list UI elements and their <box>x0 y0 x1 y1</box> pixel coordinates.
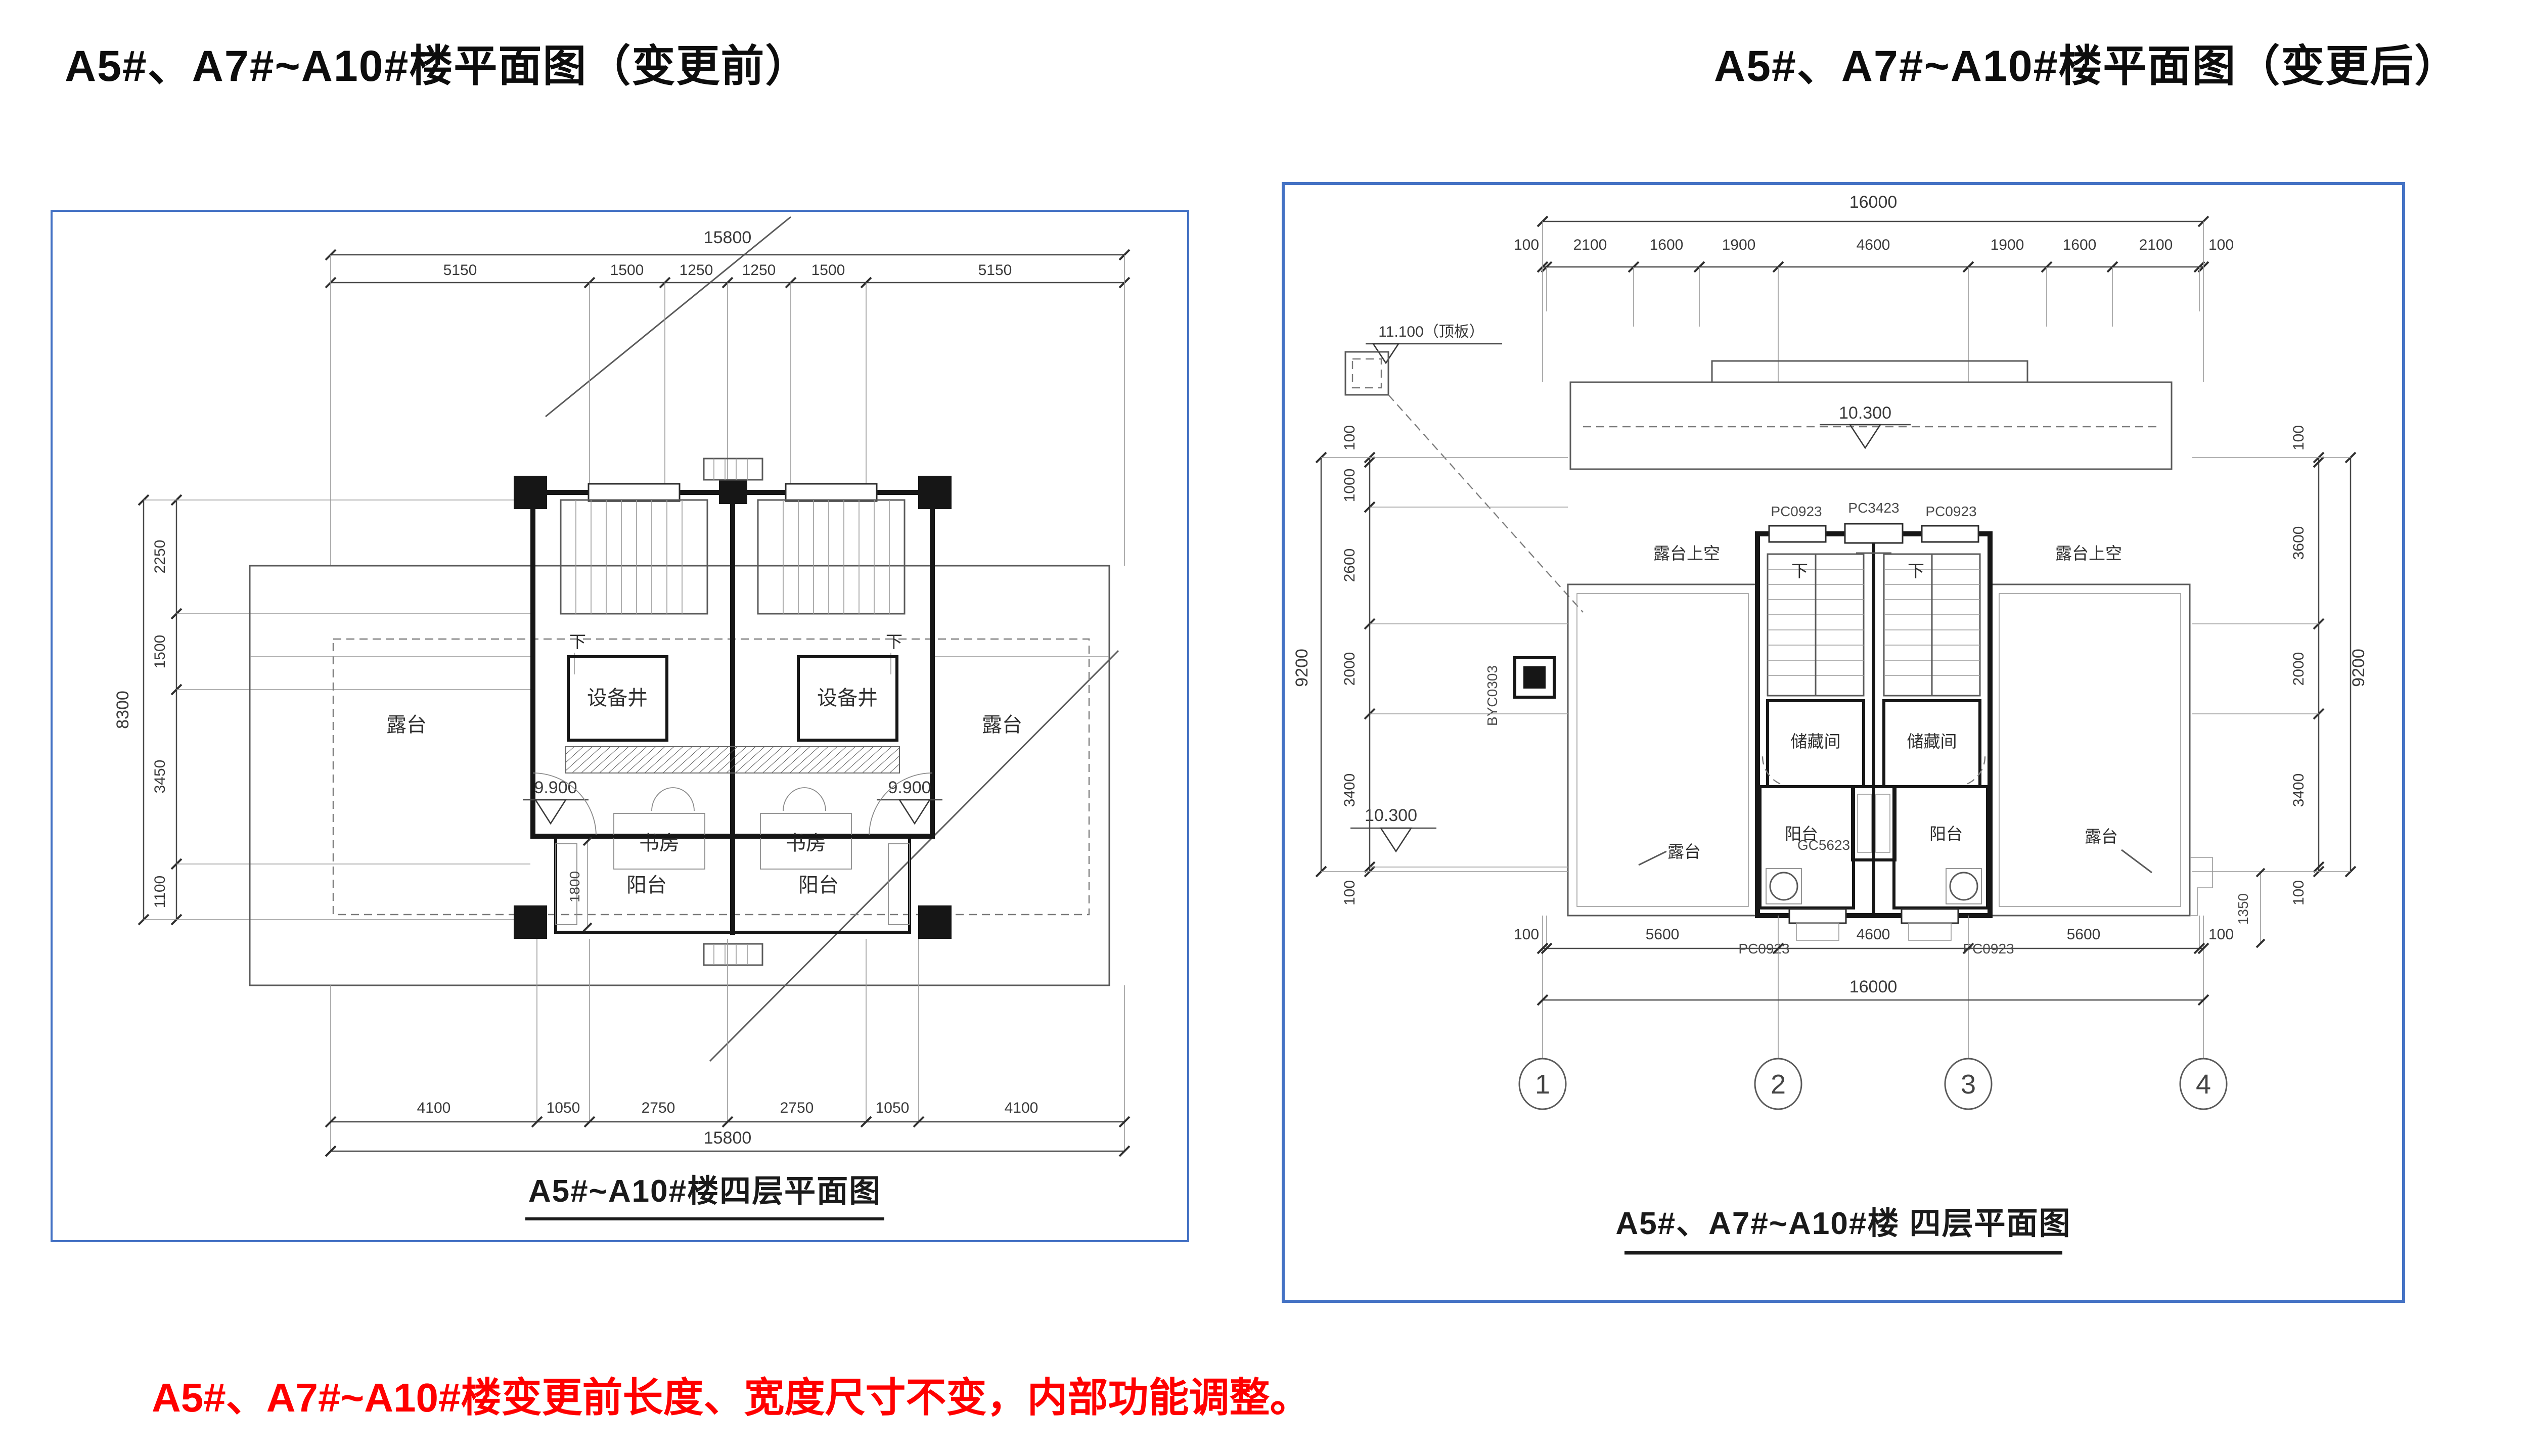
before-plan-drawing: 15800 5150 1500 1250 1250 1500 5150 8300… <box>53 212 1185 1238</box>
svg-text:2750: 2750 <box>780 1100 814 1116</box>
before-caption: A5#~A10#楼四层平面图 <box>528 1174 881 1209</box>
window-tag-top-mid: PC3423 <box>1848 500 1899 516</box>
room-equipment-shaft-left: 设备井 <box>587 687 648 709</box>
level-terrace-left: 10.300 <box>1350 806 1436 851</box>
vent-symbol-bottom <box>704 944 762 965</box>
window-tag-top-left: PC0923 <box>1771 504 1822 519</box>
room-terrace-right: 露台 <box>982 714 1022 736</box>
after-plan-drawing: 16000 100 2100 1600 1900 4600 1900 1600 … <box>1285 185 2396 1294</box>
svg-text:100: 100 <box>1514 926 1539 943</box>
svg-text:1000: 1000 <box>1341 469 1358 503</box>
room-balcony-left: 阳台 <box>1785 825 1818 843</box>
stair-down-label-right: 下 <box>886 632 902 651</box>
svg-text:2000: 2000 <box>1341 652 1358 686</box>
svg-text:1350: 1350 <box>2235 893 2251 925</box>
svg-text:5150: 5150 <box>443 262 477 279</box>
stair-down-label-left: 下 <box>569 632 586 651</box>
svg-text:4100: 4100 <box>417 1100 451 1116</box>
dim-top-overall: 15800 <box>704 228 752 247</box>
svg-text:BYC0303: BYC0303 <box>1484 665 1500 726</box>
title-after: A5#、A7#~A10#楼平面图（变更后） <box>1714 30 2459 94</box>
window-tag-top-right: PC0923 <box>1925 504 1976 519</box>
dim-balcony-depth: 1800 <box>567 871 582 902</box>
panel-after: 16000 100 2100 1600 1900 4600 1900 1600 … <box>1282 182 2405 1303</box>
svg-text:5600: 5600 <box>2067 926 2101 943</box>
svg-text:3450: 3450 <box>152 760 168 794</box>
label-terrace-left: 露台 <box>1639 842 1701 865</box>
after-wings <box>1568 584 2213 916</box>
svg-text:100: 100 <box>1514 237 1539 253</box>
svg-text:1100: 1100 <box>152 876 168 908</box>
svg-text:露台: 露台 <box>2085 827 2118 846</box>
svg-text:1900: 1900 <box>1991 237 2024 253</box>
wall-tag-byc0303: BYC0303 <box>1484 658 1554 726</box>
svg-text:1600: 1600 <box>2063 237 2097 253</box>
before-top-dims: 15800 5150 1500 1250 1250 1500 5150 <box>326 228 1130 566</box>
svg-text:1500: 1500 <box>811 262 845 279</box>
svg-text:1600: 1600 <box>1650 237 1684 253</box>
after-right-dims: 100 3600 2000 3400 100 9200 1350 <box>2192 425 2368 947</box>
svg-text:100: 100 <box>2208 237 2234 253</box>
after-core: PC0923 PC3423 PC0923 下 下 储藏间 储藏间 <box>1738 500 2014 957</box>
svg-text:100: 100 <box>1341 425 1358 450</box>
svg-text:1250: 1250 <box>742 262 776 279</box>
room-equipment-shaft-right: 设备井 <box>817 687 878 709</box>
before-balconies: 阳台 阳台 1800 <box>514 836 952 965</box>
svg-text:3600: 3600 <box>2290 526 2307 560</box>
dim-1350: 1350 <box>2235 869 2265 947</box>
room-balcony-right: 阳台 <box>798 874 839 896</box>
stair-left <box>561 500 707 614</box>
svg-text:1250: 1250 <box>680 262 713 279</box>
room-storage-right: 储藏间 <box>1907 732 1957 751</box>
svg-text:2000: 2000 <box>2290 652 2307 686</box>
svg-text:4600: 4600 <box>1857 926 1890 943</box>
room-balcony-left: 阳台 <box>626 874 667 896</box>
change-note: A5#、A7#~A10#楼变更前长度、宽度尺寸不变，内部功能调整。 <box>152 1365 1310 1424</box>
svg-text:2: 2 <box>1771 1069 1786 1100</box>
room-terrace-left: 露台 <box>386 714 427 736</box>
panel-before: 15800 5150 1500 1250 1250 1500 5150 8300… <box>51 210 1189 1242</box>
before-left-dims: 8300 2250 1500 3450 1100 <box>113 495 530 925</box>
svg-text:3: 3 <box>1961 1069 1976 1100</box>
dim-bottom-overall: 16000 <box>1849 977 1898 996</box>
dim-right-overall: 9200 <box>2349 649 2368 687</box>
dim-left-overall: 8300 <box>113 691 132 729</box>
level-roof: 10.300 <box>1839 403 1891 423</box>
label-terrace-sky-right: 露台上空 <box>2055 544 2122 563</box>
title-before: A5#、A7#~A10#楼平面图（变更前） <box>65 30 809 94</box>
after-top-dims: 16000 100 2100 1600 1900 4600 1900 1600 … <box>1514 193 2234 382</box>
svg-text:1050: 1050 <box>547 1100 580 1116</box>
dim-bottom-overall: 15800 <box>704 1128 752 1148</box>
after-caption: A5#、A7#~A10#楼 四层平面图 <box>1615 1206 2071 1241</box>
terrace-slab <box>250 566 1109 985</box>
grid-bubbles: 1 2 3 4 <box>1519 1059 2227 1109</box>
svg-text:露台: 露台 <box>1667 842 1701 861</box>
svg-text:1900: 1900 <box>1722 237 1756 253</box>
svg-text:4600: 4600 <box>1857 237 1890 253</box>
after-bottom-dims: 100 5600 4600 5600 100 16000 1 2 3 4 <box>1514 916 2234 1109</box>
svg-text:100: 100 <box>2290 880 2307 905</box>
svg-text:9.900: 9.900 <box>888 778 931 797</box>
stair-down-left: 下 <box>1791 562 1808 580</box>
stair-left <box>1768 554 1864 696</box>
before-bottom-dims: 4100 1050 2750 2750 1050 4100 15800 <box>326 939 1130 1156</box>
svg-text:100: 100 <box>1341 880 1358 905</box>
svg-text:2750: 2750 <box>642 1100 675 1116</box>
svg-text:3400: 3400 <box>1341 773 1358 807</box>
after-left-dims: 9200 100 1000 2600 2000 3400 100 <box>1292 425 1568 905</box>
svg-text:1: 1 <box>1535 1069 1550 1100</box>
note-11100: 11.100（顶板） <box>1345 324 1583 612</box>
roof-band: 10.300 <box>1570 361 2172 469</box>
svg-text:2100: 2100 <box>2139 237 2173 253</box>
svg-text:1500: 1500 <box>152 635 168 669</box>
svg-text:5150: 5150 <box>978 262 1012 279</box>
svg-text:4100: 4100 <box>1005 1100 1039 1116</box>
svg-text:100: 100 <box>2290 425 2307 450</box>
svg-text:5600: 5600 <box>1646 926 1680 943</box>
dim-left-overall: 9200 <box>1292 649 1312 687</box>
svg-text:2250: 2250 <box>152 540 168 574</box>
svg-text:1050: 1050 <box>876 1100 910 1116</box>
svg-text:3400: 3400 <box>2290 773 2307 807</box>
svg-text:4: 4 <box>2196 1069 2211 1100</box>
svg-text:1500: 1500 <box>610 262 644 279</box>
vent-symbol <box>704 459 762 480</box>
dim-top-overall: 16000 <box>1849 193 1898 212</box>
svg-text:2600: 2600 <box>1341 549 1358 582</box>
label-terrace-right: 露台 <box>2085 827 2152 873</box>
svg-text:11.100（顶板）: 11.100（顶板） <box>1378 324 1484 340</box>
svg-text:10.300: 10.300 <box>1365 806 1417 825</box>
svg-text:100: 100 <box>2208 926 2234 943</box>
room-storage-left: 储藏间 <box>1791 732 1841 751</box>
room-balcony-right: 阳台 <box>1929 825 1963 843</box>
stair-down-right: 下 <box>1908 562 1924 580</box>
label-terrace-sky-left: 露台上空 <box>1653 544 1720 563</box>
stair-right <box>1884 554 1980 696</box>
svg-text:2100: 2100 <box>1573 237 1607 253</box>
svg-text:9.900: 9.900 <box>534 778 577 797</box>
stair-right <box>758 500 905 614</box>
